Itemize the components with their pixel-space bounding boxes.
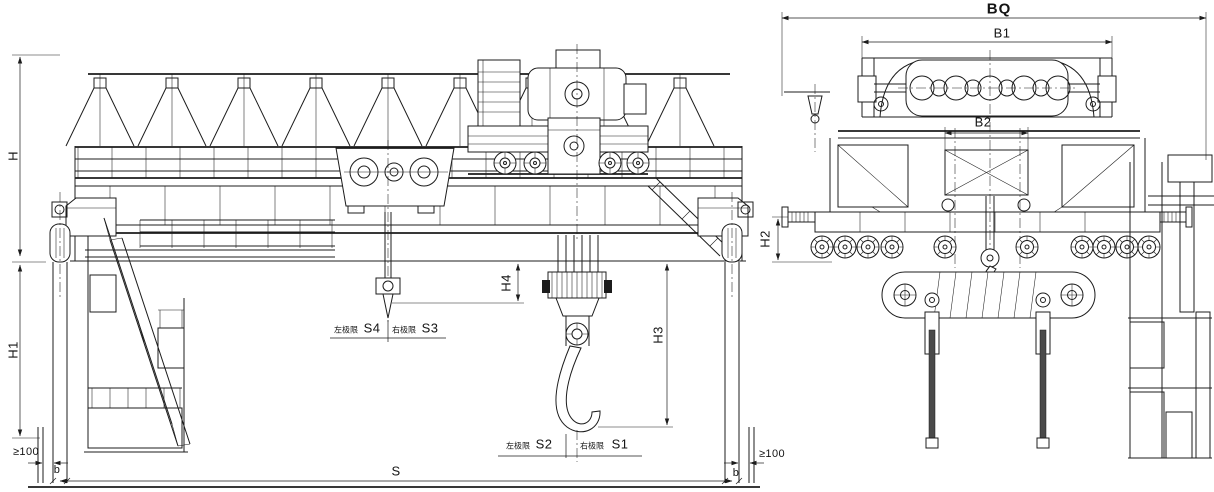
access-stairs (84, 218, 190, 452)
aux-right-limit-value: S3 (422, 321, 439, 336)
saddle-beam (815, 212, 1160, 232)
side-view (772, 12, 1214, 458)
dim-label-H: H (6, 151, 21, 161)
rope-drum (898, 60, 1076, 116)
aux-hoist-mechanism (336, 148, 454, 213)
aux-left-limit-value: S4 (364, 321, 381, 336)
dim-label-b-right: b (733, 467, 740, 479)
hook-limit-annotations (330, 320, 642, 458)
trolley-wheel (627, 152, 649, 174)
balance-beam (882, 272, 1095, 318)
dim-label-H4: H4 (499, 274, 514, 291)
trolley-wheel (494, 152, 516, 174)
trolley-wheel (524, 152, 546, 174)
stair-platform-mid (158, 328, 184, 368)
dim-label-B2: B2 (975, 115, 992, 130)
main-right-limit-label: 右极限 (580, 441, 604, 452)
crane-general-arrangement-drawing: H H1 H4 H3 S ≥100 ≥100 b b 左极限 S4 右极限 S3… (0, 0, 1214, 492)
lifting-rods (925, 312, 1050, 448)
stair-platform-upper (90, 275, 116, 312)
main-left-limit-value: S2 (536, 437, 553, 452)
front-view (12, 44, 764, 487)
maintenance-ladder-tower (1128, 155, 1214, 458)
runway-rails (28, 262, 760, 487)
main-hook (556, 346, 600, 432)
dim-label-H3: H3 (651, 326, 666, 343)
dim-label-B1: B1 (994, 26, 1011, 41)
dim-label-b-left: b (54, 464, 61, 476)
resistor-cabinet (478, 60, 520, 126)
main-left-limit-label: 左极限 (506, 441, 530, 452)
dim-label-H2: H2 (758, 230, 773, 247)
dim-label-clearance-left: ≥100 (13, 446, 39, 458)
dim-label-H1: H1 (6, 341, 21, 358)
ladder-lower (1196, 312, 1210, 458)
aux-right-limit-label: 右极限 (392, 325, 416, 336)
ladder-upper (1180, 182, 1194, 312)
left-bracket (784, 84, 830, 152)
trolley-wheel (599, 152, 621, 174)
main-right-limit-value: S1 (612, 437, 629, 452)
dim-label-clearance-right: ≥100 (759, 448, 785, 460)
dim-label-S: S (391, 464, 400, 479)
crane-drawing-canvas (0, 0, 1214, 492)
aux-left-limit-label: 左极限 (334, 325, 358, 336)
dim-label-BQ: BQ (987, 1, 1012, 18)
